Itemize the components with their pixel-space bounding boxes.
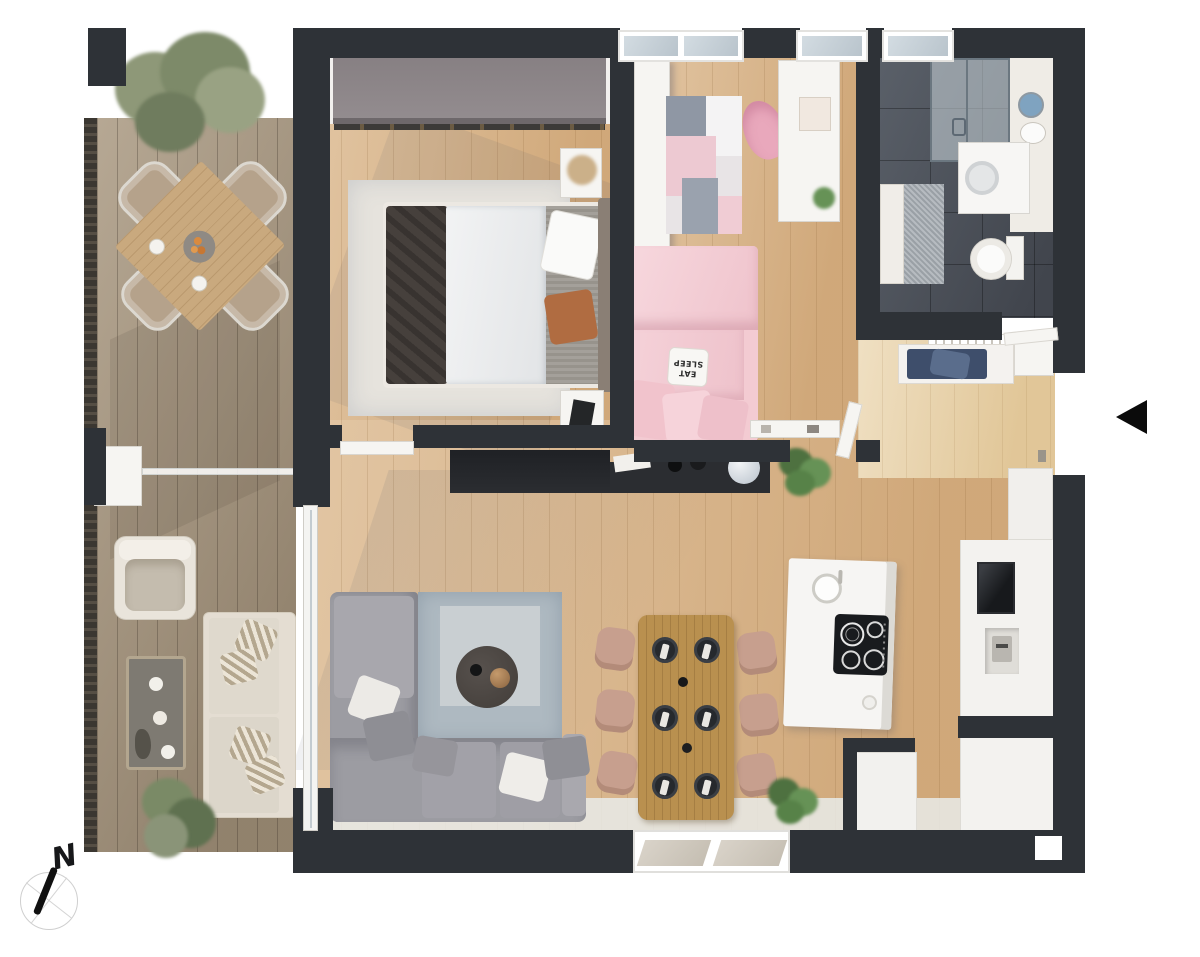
bathroom-counter: [880, 184, 904, 284]
place-setting: [652, 773, 678, 799]
sofa: [330, 592, 586, 822]
wall-bathroom-west: [856, 56, 880, 340]
terrace-tree: [105, 22, 270, 162]
bedroom2-wardrobe: [634, 60, 670, 252]
wall-bedroom1-south-b: [413, 425, 612, 448]
eat-sleep-pillow: EAT SLEEP: [667, 347, 710, 388]
place-setting: [652, 637, 678, 663]
cup: [188, 272, 211, 295]
shower-handle: [952, 118, 966, 136]
island-knob: [862, 695, 878, 711]
lounge-chair-back: [119, 540, 191, 560]
bathroom-sink: [1020, 122, 1046, 144]
wall-kitchen-l-horiz: [843, 738, 915, 752]
napkin: [659, 779, 669, 795]
cup: [146, 235, 169, 258]
place-setting: [694, 705, 720, 731]
bedroom1-bed: [383, 202, 604, 388]
wall-kitchen-beam: [958, 716, 1085, 738]
wall-bedroom2-south-stub: [856, 440, 880, 462]
sofa-pillow-gray: [362, 710, 416, 763]
wall-top-b: [742, 28, 800, 58]
napkin: [659, 711, 669, 727]
rug-patch-gray2: [682, 178, 718, 234]
sofa-pillow-gray: [411, 735, 459, 778]
dining-chair: [594, 688, 636, 734]
place-setting: [694, 637, 720, 663]
terrace-glass-divider: [142, 468, 296, 475]
window-glass: [713, 840, 787, 866]
door-bedroom1: [340, 441, 414, 455]
dining-chair: [735, 630, 778, 677]
napkin: [701, 711, 711, 727]
napkin: [701, 643, 711, 659]
terrace-glass-wall: [303, 505, 318, 831]
sofa-pillow-gray: [541, 735, 590, 781]
wall-kitchen-l-vert: [843, 740, 857, 845]
wall-niche: [1035, 836, 1062, 860]
bedroom2-shelf: [750, 420, 840, 438]
toilet: [970, 234, 1022, 282]
fruit-bowl: [177, 224, 222, 269]
sideboard-left: [450, 450, 610, 493]
shrub-foliage: [144, 814, 188, 858]
window-bedroom2-b: [796, 30, 868, 62]
napkin: [659, 643, 669, 659]
north-compass-icon: N: [14, 840, 104, 940]
entry-cabinet: [1014, 340, 1054, 376]
round-mirror: [1018, 92, 1044, 118]
pink-duvet-fold: [626, 246, 758, 330]
washer-door: [965, 161, 999, 195]
living-plant: [766, 774, 822, 830]
coffee-machine: [992, 636, 1012, 662]
window-bedroom2-a: [618, 30, 744, 62]
dining-chair: [593, 626, 636, 673]
place-setting: [694, 773, 720, 799]
wall-right-lower: [1053, 475, 1085, 873]
cooktop: [833, 614, 889, 676]
cooktop-controls: [882, 624, 886, 668]
table-vase: [678, 677, 688, 687]
lounge-chair-cushion: [125, 559, 185, 611]
terrace-lounge-chair: [114, 536, 196, 620]
dining-chair: [738, 692, 780, 738]
wall-west: [293, 50, 330, 507]
table-bowl-black: [470, 664, 482, 676]
bedroom2-rug: [666, 96, 742, 234]
window-glass: [684, 36, 738, 56]
bedroom2-bed: EAT SLEEP: [626, 246, 758, 442]
cup: [153, 711, 167, 725]
pink-pillow: [697, 394, 750, 445]
washing-machine: [958, 142, 1030, 214]
wall-bedroom-divider: [610, 56, 634, 448]
wall-top-a: [293, 28, 620, 58]
cup: [161, 745, 175, 759]
terrace-pillar: [88, 28, 126, 86]
rug-patch-pink2: [718, 196, 742, 234]
burner: [840, 622, 865, 647]
wall-bedroom2-south: [634, 440, 790, 462]
wall-bottom-left: [293, 830, 635, 873]
bedroom1-wardrobe: [327, 58, 612, 124]
table-vase: [682, 743, 692, 753]
bed-duvet-white: [446, 206, 548, 384]
rug-patch-gray: [666, 96, 706, 136]
table-vase-bronze: [490, 668, 510, 688]
tree-foliage: [195, 67, 265, 133]
entry-bench: [898, 344, 1014, 384]
bed-pillow-brown: [543, 289, 598, 346]
bed-blanket-dark: [386, 206, 448, 384]
plant-foliage: [776, 800, 804, 824]
place-setting: [652, 705, 678, 731]
shelf-decor: [761, 425, 771, 433]
island-faucet: [838, 570, 842, 584]
coffee-machine-niche: [985, 628, 1019, 674]
desk-picture: [799, 97, 831, 131]
table-decor: [135, 729, 151, 759]
plant-foliage: [785, 470, 815, 496]
window-bathroom: [882, 30, 954, 62]
burner: [866, 621, 884, 639]
napkin: [701, 779, 711, 795]
coffee-machine-slot: [996, 644, 1008, 648]
window-living-south: [633, 830, 790, 873]
pillow-text: EAT SLEEP: [668, 357, 707, 380]
door-handle-mark: [1038, 450, 1046, 462]
burner: [841, 650, 861, 670]
wall-bathroom-south-a: [880, 312, 1002, 340]
floor-plan-canvas: EAT SLEEP: [0, 0, 1200, 957]
kitchen-island: [783, 558, 897, 730]
entrance-arrow-icon: [1116, 400, 1147, 434]
window-glass: [888, 36, 948, 56]
kitchen-tall-units: [960, 540, 1053, 832]
built-in-oven: [977, 562, 1015, 614]
window-glass: [624, 36, 678, 56]
terrace-shrub: [136, 770, 220, 868]
tree-foliage: [135, 92, 205, 152]
dining-table: [638, 615, 734, 820]
toilet-bowl: [970, 238, 1012, 280]
cup: [149, 677, 163, 691]
terrace-mid-stub: [84, 428, 106, 505]
sideboard-right: [610, 462, 770, 493]
terrace-coffee-table: [126, 656, 186, 770]
window-glass: [802, 36, 862, 56]
bathroom-rug: [904, 184, 944, 284]
shelf-decor: [807, 425, 819, 433]
bedroom2-desk: [778, 60, 840, 222]
dried-plant: [567, 155, 597, 185]
window-glass: [637, 840, 711, 866]
glass-pane-line: [310, 510, 312, 828]
coffee-table: [456, 646, 518, 708]
bedroom1-planter: [560, 148, 602, 198]
desk-plant: [813, 187, 835, 209]
entry-tall-cabinet: [1008, 468, 1053, 540]
wall-bathroom-south-b: [1056, 312, 1085, 340]
